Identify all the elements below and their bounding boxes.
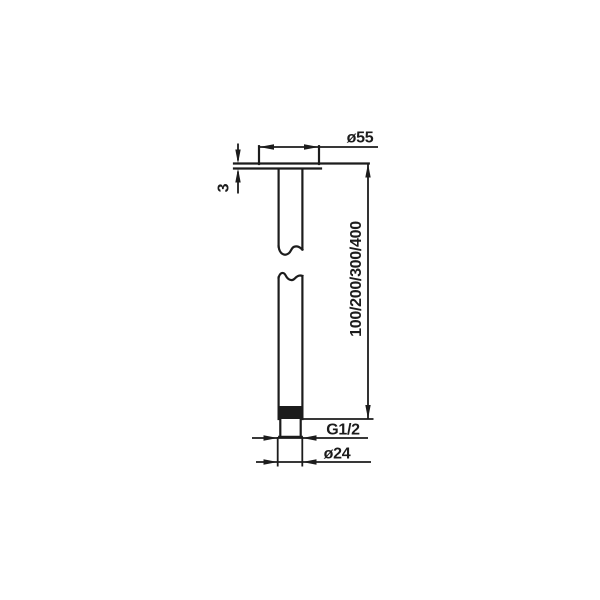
dim-label-pipe-diameter: ø24	[324, 446, 351, 463]
dimension-flange-diameter: ø55	[259, 130, 378, 150]
arrowhead-right-icon	[264, 435, 278, 440]
arrowhead-up-icon	[365, 164, 370, 178]
thread-collar-band	[278, 407, 303, 419]
arrowhead-left-icon	[302, 459, 316, 464]
dimension-pipe-diameter: ø24	[256, 437, 371, 467]
flange-assembly	[234, 146, 369, 168]
dimension-thread-size: G1/2	[252, 422, 368, 441]
arrowhead-down-icon	[365, 405, 370, 419]
arrowhead-down-icon	[235, 150, 240, 164]
arrowhead-up-icon	[235, 169, 240, 183]
arrowhead-right-icon	[304, 144, 319, 149]
shower-arm-drawing: ø55 3 100/200/300/400 G1/2	[0, 0, 600, 600]
arrowhead-left-icon	[259, 144, 274, 149]
dim-label-flange-thickness: 3	[216, 183, 233, 192]
technical-drawing-canvas: ø55 3 100/200/300/400 G1/2	[0, 0, 600, 600]
dimension-arm-length: 100/200/300/400	[304, 164, 374, 420]
pipe-break-line-lower	[279, 273, 303, 280]
dim-label-thread-size: G1/2	[326, 422, 360, 439]
pipe-break-line-upper	[279, 246, 303, 254]
thread-end-detail	[278, 407, 303, 437]
arrowhead-left-icon	[302, 435, 316, 440]
arrowhead-right-icon	[264, 459, 278, 464]
pipe-lower-section	[279, 273, 303, 419]
dim-label-flange-diameter: ø55	[347, 130, 374, 147]
dim-label-arm-length: 100/200/300/400	[348, 221, 365, 337]
pipe-upper-section	[279, 170, 303, 255]
